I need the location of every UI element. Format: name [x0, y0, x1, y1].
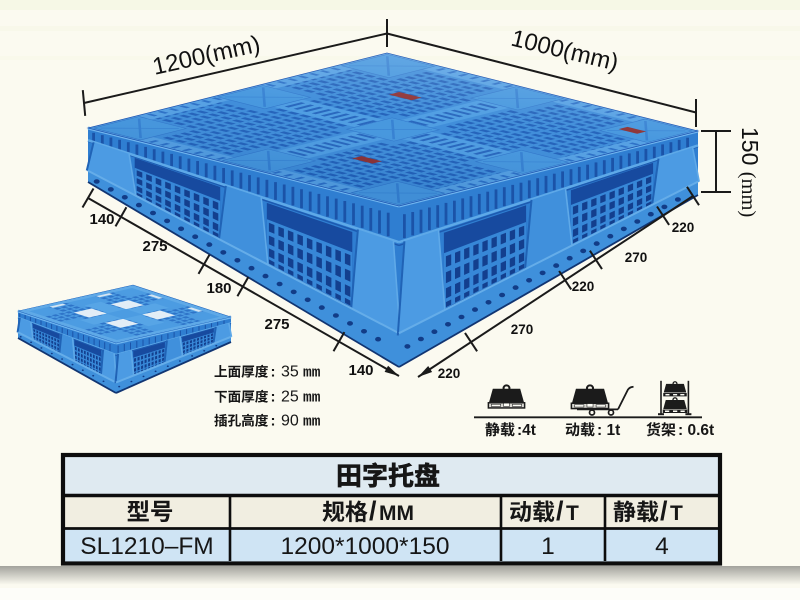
svg-text:140: 140	[348, 362, 373, 379]
svg-text:270: 270	[625, 250, 648, 265]
svg-text:1: 1	[541, 533, 555, 560]
svg-text:150 (mm): 150 (mm)	[737, 127, 763, 217]
svg-text:220: 220	[438, 366, 461, 381]
svg-text:220: 220	[572, 279, 595, 294]
svg-text:SL1210–FM: SL1210–FM	[80, 533, 213, 560]
svg-text:4: 4	[655, 533, 669, 560]
svg-text::: :	[271, 413, 276, 430]
svg-text:270: 270	[511, 322, 534, 337]
svg-text:140: 140	[89, 211, 114, 228]
svg-text:/: /	[556, 496, 564, 526]
svg-text:MM: MM	[379, 502, 414, 525]
svg-text:mm: mm	[303, 415, 321, 431]
svg-text:/: /	[369, 496, 377, 526]
svg-text:220: 220	[672, 220, 695, 235]
svg-text:275: 275	[142, 238, 167, 255]
svg-text::: :	[271, 364, 276, 381]
svg-text:T: T	[670, 502, 683, 525]
svg-text:180: 180	[206, 280, 231, 297]
svg-text:1200*1000*150: 1200*1000*150	[281, 533, 450, 560]
svg-text:mm: mm	[303, 391, 321, 407]
svg-text:90: 90	[281, 413, 299, 430]
svg-text::: :	[271, 389, 276, 406]
svg-text:275: 275	[264, 316, 289, 333]
svg-text:/: /	[660, 496, 668, 526]
svg-text:T: T	[566, 502, 579, 525]
svg-text:mm: mm	[303, 366, 321, 382]
svg-text:25: 25	[281, 389, 299, 406]
svg-text:: 1t: : 1t	[597, 422, 620, 439]
svg-text:35: 35	[281, 364, 299, 381]
svg-text:: 0.6t: : 0.6t	[678, 422, 714, 439]
svg-text::4t: :4t	[517, 422, 536, 439]
